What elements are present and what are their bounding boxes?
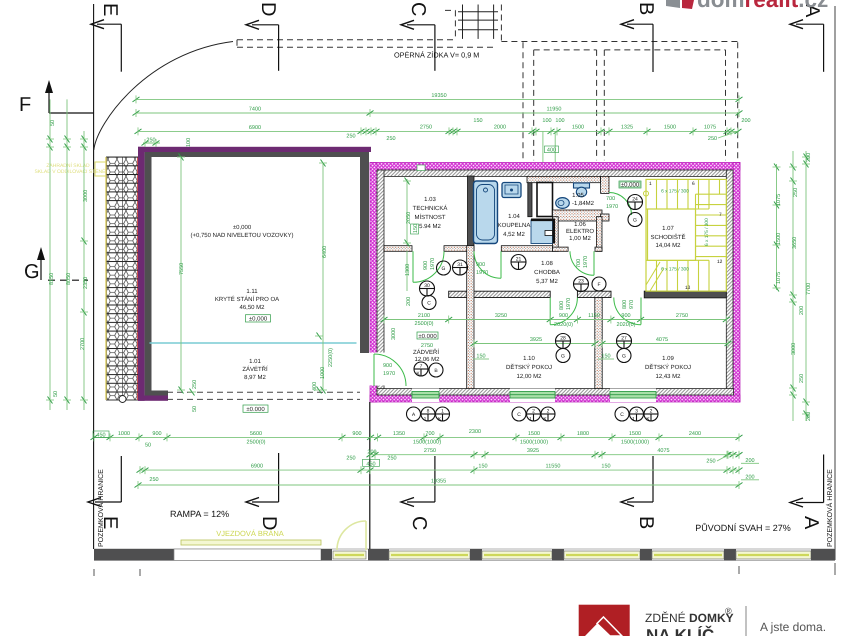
svg-text:13: 13 [685,285,691,291]
svg-text:250: 250 [387,456,396,462]
svg-text:3925: 3925 [530,337,542,343]
svg-text:250: 250 [346,134,355,140]
svg-text:1: 1 [441,409,444,415]
svg-text:2500(0): 2500(0) [415,321,434,327]
svg-text:3: 3 [635,409,638,415]
svg-text:1970: 1970 [476,270,488,276]
svg-text:19350: 19350 [431,93,446,99]
svg-text:1075: 1075 [704,125,716,131]
svg-text:12: 12 [717,259,723,265]
svg-text:450: 450 [96,432,105,438]
svg-text:SCHODIŠTĚ: SCHODIŠTĚ [650,233,685,241]
svg-text:±0,000: ±0,000 [621,182,640,189]
svg-text:27: 27 [621,336,627,342]
svg-text:1500: 1500 [629,431,641,437]
svg-text:ZÁDVEŘÍ: ZÁDVEŘÍ [413,348,439,356]
svg-text:2350: 2350 [83,277,89,289]
svg-text:PŮVODNÍ SVAH = 27%: PŮVODNÍ SVAH = 27% [695,522,791,533]
svg-text:5,37 M2: 5,37 M2 [536,278,558,285]
svg-text:3250: 3250 [495,313,507,319]
svg-text:1970: 1970 [606,204,618,210]
svg-text:800: 800 [622,300,628,309]
svg-text:1075: 1075 [776,272,782,284]
svg-text:150: 150 [473,118,482,124]
svg-text:1500(1000): 1500(1000) [520,439,548,445]
svg-text:900: 900 [621,313,630,319]
svg-text:C: C [408,516,430,530]
svg-text:C: C [427,301,431,307]
svg-text:2750: 2750 [676,313,688,319]
svg-text:1.06: 1.06 [574,221,586,228]
svg-text:8150: 8150 [49,273,55,285]
svg-text:2300: 2300 [469,429,481,435]
svg-text:4,52 M2: 4,52 M2 [503,231,525,238]
svg-text:1500(1000): 1500(1000) [413,439,441,445]
svg-text:2700: 2700 [80,338,86,350]
svg-text:MÍSTNOST: MÍSTNOST [415,213,446,221]
svg-text:28: 28 [560,336,566,342]
svg-text:1.10: 1.10 [523,355,535,362]
svg-text:1075: 1075 [776,194,782,206]
svg-text:1: 1 [529,417,532,423]
svg-text:G: G [561,354,565,360]
svg-text:C: C [407,2,429,16]
svg-text:1500: 1500 [664,125,676,131]
svg-text:150: 150 [413,224,419,233]
svg-text:7700: 7700 [806,283,812,295]
svg-text:1: 1 [649,181,652,187]
svg-text:±0,000: ±0,000 [233,224,252,231]
svg-text:1970: 1970 [383,371,395,377]
svg-text:®: ® [725,606,732,616]
svg-text:200: 200 [806,153,812,162]
svg-text:200: 200 [806,412,812,421]
svg-text:1325: 1325 [621,125,633,131]
svg-text:1500: 1500 [528,431,540,437]
svg-text:CHODBA: CHODBA [534,269,560,276]
svg-text:50: 50 [192,406,198,412]
svg-text:C: C [517,412,521,418]
svg-text:400: 400 [547,147,556,153]
svg-text:5.94 M2: 5.94 M2 [419,223,441,230]
svg-text:POZEMKOVÁ HRANICE: POZEMKOVÁ HRANICE [825,469,834,547]
svg-text:2400: 2400 [689,431,701,437]
svg-text:1.09: 1.09 [662,355,674,362]
svg-text:2020(0): 2020(0) [617,322,636,328]
svg-text:TECHNICKÁ: TECHNICKÁ [413,204,448,212]
svg-text:970: 970 [629,300,635,309]
svg-text:4075: 4075 [657,448,669,454]
svg-text:3000: 3000 [391,328,397,340]
svg-text:3000: 3000 [791,343,797,355]
svg-text:SKLAD V ODDILOVACI STĖNĖ: SKLAD V ODDILOVACI STĖNĖ [34,168,106,175]
svg-text:G: G [622,354,626,360]
svg-text:23: 23 [578,279,584,285]
svg-text:2020(0): 2020(0) [554,322,573,328]
svg-text:ZAHRADNÍ SKLAD: ZAHRADNÍ SKLAD [46,162,90,169]
svg-text:2750: 2750 [424,448,436,454]
svg-text:250: 250 [708,136,717,142]
svg-text:200: 200 [367,450,376,456]
svg-text:1.07: 1.07 [662,225,674,232]
svg-text:30: 30 [424,283,430,289]
svg-text:200: 200 [406,297,412,306]
svg-text:6: 6 [692,181,695,187]
svg-text:2: 2 [547,409,550,415]
svg-text:1500: 1500 [572,125,584,131]
svg-text:DĚTSKÝ POKOJ: DĚTSKÝ POKOJ [506,363,552,371]
svg-text:E: E [99,3,121,16]
svg-text:4075: 4075 [656,337,668,343]
svg-text:250: 250 [706,459,715,465]
svg-text:±0.000: ±0.000 [418,333,437,340]
svg-text:RAMPA = 12%: RAMPA = 12% [170,509,229,519]
svg-text:19355: 19355 [431,479,446,485]
svg-text:250: 250 [146,137,155,143]
svg-text:1.03: 1.03 [424,196,436,203]
svg-text:50: 50 [53,391,59,397]
svg-text:1350: 1350 [393,431,405,437]
svg-text:14,04 M2: 14,04 M2 [655,242,681,249]
svg-text:6 x 175 / 300: 6 x 175 / 300 [661,267,689,273]
svg-text:VJEZDOVÁ BRÁNA: VJEZDOVÁ BRÁNA [216,529,284,538]
svg-text:6400: 6400 [322,246,328,258]
svg-text:2250(0): 2250(0) [328,348,334,367]
svg-text:B: B [635,516,657,529]
svg-text:-1,84M2: -1,84M2 [572,200,595,207]
svg-text:7: 7 [420,364,423,370]
svg-text:1970: 1970 [566,298,572,310]
svg-text:6900: 6900 [251,464,263,470]
svg-text:250: 250 [793,188,799,197]
svg-text:F: F [19,94,31,116]
svg-text:±0,000: ±0,000 [249,316,268,323]
svg-text:21: 21 [516,257,522,263]
svg-text:POZEMKOVÁ HRANICE: POZEMKOVÁ HRANICE [96,469,105,547]
svg-text:900: 900 [476,262,485,268]
svg-text:200: 200 [741,118,750,124]
svg-text:2000: 2000 [494,125,506,131]
svg-text:3650: 3650 [792,237,798,249]
svg-text:11550: 11550 [546,463,561,469]
svg-text:31: 31 [457,262,463,268]
svg-text:G: G [24,261,40,283]
svg-text:1970: 1970 [583,256,589,268]
svg-text:150: 150 [478,463,487,469]
svg-text:100: 100 [542,118,551,124]
svg-text:DĚTSKÝ POKOJ: DĚTSKÝ POKOJ [645,363,691,371]
svg-text:8,97 M2: 8,97 M2 [244,374,266,381]
svg-text:50: 50 [145,443,151,449]
svg-text:250: 250 [346,456,355,462]
svg-text:B: B [635,2,657,15]
svg-text:±0.000: ±0.000 [246,406,265,413]
svg-text:OPĖRNÁ ZÍDKA V= 0,9 M: OPĖRNÁ ZÍDKA V= 0,9 M [394,51,479,60]
svg-text:1150: 1150 [588,313,600,319]
svg-text:F: F [597,282,600,288]
svg-text:ZDĚNÉ DOMKY: ZDĚNÉ DOMKY [645,611,734,625]
svg-text:G: G [442,266,446,272]
svg-text:D: D [257,2,279,16]
svg-text:2500(0): 2500(0) [247,439,266,445]
svg-text:3925: 3925 [527,448,539,454]
svg-text:1300: 1300 [405,264,411,276]
svg-text:250: 250 [799,374,805,383]
svg-text:7400: 7400 [249,107,261,113]
svg-text:1.11: 1.11 [246,288,258,295]
svg-text:200: 200 [799,306,805,315]
svg-text:900: 900 [152,431,161,437]
svg-text:A jste doma.: A jste doma. [760,620,826,634]
svg-text:1: 1 [632,417,635,423]
svg-text:(+0,750 NAD NIVELETOU VOZOVKY): (+0,750 NAD NIVELETOU VOZOVKY) [190,232,293,239]
svg-text:100: 100 [555,118,564,124]
svg-text:ELEKTRO: ELEKTRO [566,228,594,235]
svg-text:KRYTÉ STÁNÍ PRO OA: KRYTÉ STÁNÍ PRO OA [215,295,279,303]
svg-text:2750: 2750 [421,343,433,349]
svg-text:1: 1 [424,417,427,423]
svg-text:1800: 1800 [577,431,589,437]
svg-text:1000: 1000 [320,367,326,379]
svg-text:A: A [800,516,822,530]
svg-text:1.08: 1.08 [541,260,553,267]
svg-text:2750: 2750 [420,125,432,131]
svg-text:5600: 5600 [250,431,262,437]
svg-text:NA KLÍČ: NA KLÍČ [646,625,714,636]
svg-text:700: 700 [425,431,434,437]
svg-text:3000: 3000 [83,190,89,202]
svg-text:11950: 11950 [547,107,562,113]
svg-text:1.01: 1.01 [249,358,261,365]
svg-text:1000: 1000 [118,431,130,437]
svg-text:8: 8 [427,409,430,415]
svg-text:6 x 175 / 300: 6 x 175 / 300 [661,189,689,195]
svg-text:C: C [620,412,624,418]
svg-text:1.04: 1.04 [508,213,520,220]
svg-text:2: 2 [532,409,535,415]
svg-text:24: 24 [632,197,638,203]
svg-text:900: 900 [423,261,429,270]
svg-text:900: 900 [352,431,361,437]
svg-text:50: 50 [50,120,56,126]
svg-text:12,43 M2: 12,43 M2 [655,373,681,380]
svg-text:1970: 1970 [430,258,436,270]
svg-text:KOUPELNA: KOUPELNA [498,222,531,229]
svg-text:7550: 7550 [179,263,185,275]
svg-text:6900: 6900 [249,125,261,131]
svg-text:250: 250 [149,477,158,483]
svg-text:G: G [633,218,637,224]
svg-text:1500: 1500 [776,233,782,245]
svg-text:150: 150 [601,463,610,469]
svg-text:46,50 M2: 46,50 M2 [239,304,265,311]
svg-text:2100: 2100 [418,313,430,319]
svg-text:2: 2 [650,409,653,415]
svg-text:1.05: 1.05 [572,192,584,199]
svg-text:700: 700 [606,196,615,202]
svg-text:450: 450 [366,461,375,467]
svg-text:1500(1000): 1500(1000) [621,439,649,445]
svg-text:12,00 M2: 12,00 M2 [516,373,542,380]
svg-text:1,00 M2: 1,00 M2 [569,235,591,242]
svg-text:100: 100 [186,138,192,147]
svg-text:250: 250 [192,380,198,389]
svg-text:900: 900 [383,363,392,369]
svg-text:8050: 8050 [66,273,72,285]
svg-text:250: 250 [386,136,395,142]
svg-text:900: 900 [559,313,568,319]
svg-text:ZÁVĖTŘÍ: ZÁVĖTŘÍ [242,365,268,373]
svg-text:domrealit.cz: domrealit.cz [697,0,828,12]
svg-text:700: 700 [576,259,582,268]
svg-text:7: 7 [719,212,722,218]
svg-text:800: 800 [559,301,565,310]
svg-text:2050: 2050 [406,212,412,224]
svg-text:6 x 175 / 300: 6 x 175 / 300 [704,218,710,246]
